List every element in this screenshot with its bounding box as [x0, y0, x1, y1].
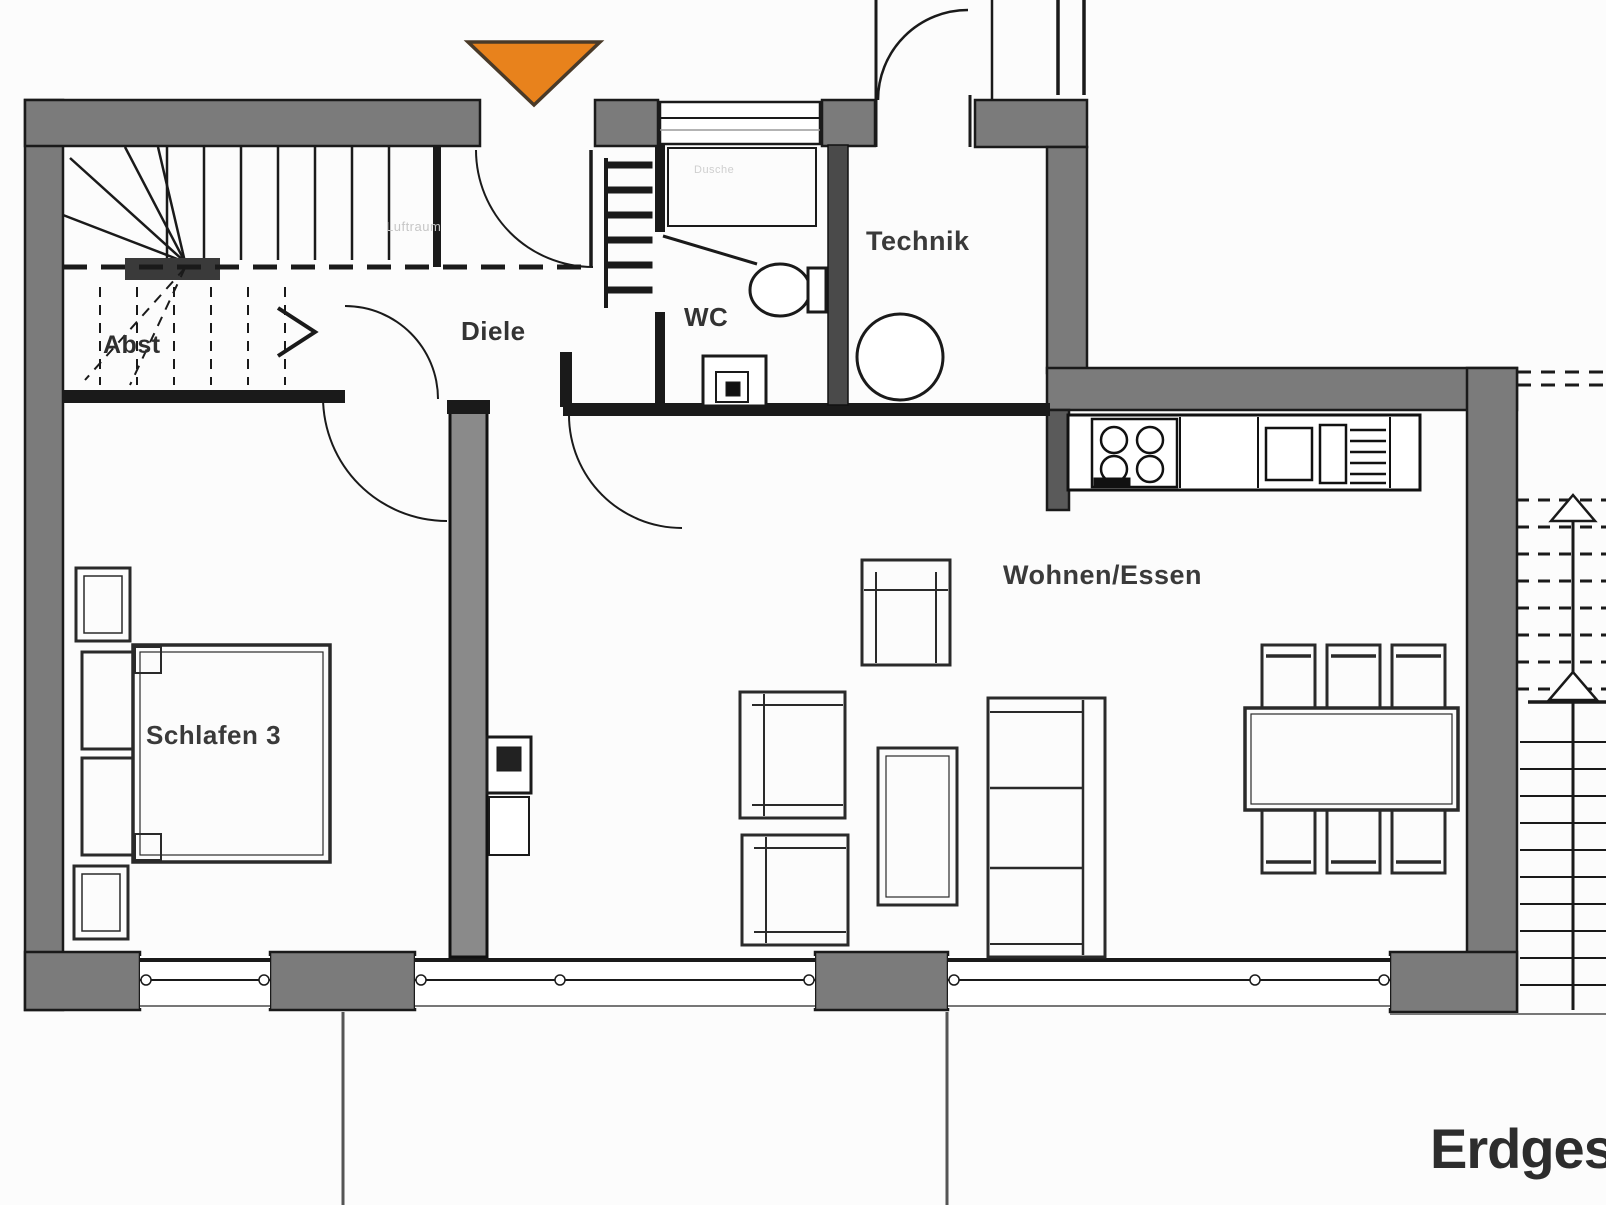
stair-arrowhead-icon — [1549, 672, 1597, 700]
bedroom-furniture — [74, 568, 330, 939]
wall-pier-bottom-4 — [1390, 952, 1517, 1012]
exterior-walls — [25, 100, 1517, 1012]
window-bottom-2 — [415, 956, 815, 1008]
bed-corner — [135, 647, 161, 673]
wall-right — [1467, 368, 1517, 1012]
bed-corner — [135, 834, 161, 860]
wc-fixtures — [668, 148, 826, 406]
wall-schlafen-wohnen-cap — [447, 400, 490, 414]
stair-direction-arrow-icon — [278, 308, 315, 356]
winder-line — [125, 147, 185, 262]
room-label-diele: Diele — [461, 316, 526, 347]
armchair-icon — [740, 692, 845, 818]
window-bottom-3 — [948, 956, 1390, 1008]
window-bottom-1 — [140, 956, 270, 1008]
wall-stairroom-bottom — [63, 390, 345, 403]
wall-unit-display — [497, 747, 521, 771]
faint-label-luftraum: Luftraum — [386, 219, 441, 234]
kitchen-counter — [1068, 415, 1420, 490]
room-label-wc: WC — [684, 302, 728, 333]
wall-technik-right — [1047, 147, 1087, 373]
radiator-icon — [606, 158, 652, 308]
wc-shower-area — [668, 148, 816, 226]
winder-line — [158, 147, 185, 262]
boiler-icon — [857, 314, 943, 400]
room-label-technik: Technik — [866, 226, 970, 257]
window-top — [660, 102, 820, 144]
wall-top-a — [25, 100, 480, 146]
burner — [1137, 456, 1163, 482]
wall-wohnen-top — [1047, 368, 1517, 410]
floorplan-canvas: Abst Diele WC Technik Wohnen/Essen Schla… — [0, 0, 1606, 1205]
floorplan-drawing — [0, 0, 1606, 1205]
shaft-wc-technik — [828, 145, 848, 405]
pillow-icon — [82, 758, 133, 855]
wall-top-d — [975, 100, 1087, 147]
wc-door-leaf — [663, 236, 757, 264]
bed-icon — [133, 645, 330, 862]
toilet-tank — [808, 268, 826, 312]
room-label-schlafen-3: Schlafen 3 — [146, 720, 281, 751]
entrance-marker-icon — [468, 42, 600, 105]
winder-dashed — [130, 268, 185, 385]
dining-table-icon — [1245, 708, 1458, 810]
door-arc-entrance-top — [878, 10, 968, 100]
pillow-icon — [82, 652, 133, 749]
faint-label-dusche: Dusche — [694, 164, 734, 176]
dining-set — [1245, 645, 1458, 873]
wall-unit-lower — [489, 797, 529, 855]
room-label-wohnen-essen: Wohnen/Essen — [1003, 560, 1202, 591]
wall-pier-bottom-2 — [270, 952, 415, 1010]
wall-left — [25, 100, 63, 1010]
burner — [1101, 427, 1127, 453]
wall-top-b — [595, 100, 658, 146]
wall-schlafen-wohnen — [450, 403, 487, 957]
stove-panel — [1094, 478, 1130, 487]
dishwasher-icon — [1320, 425, 1346, 483]
living-furniture — [740, 560, 1105, 957]
wall-pier-bottom-1 — [25, 952, 140, 1010]
wall-wc-left-lower — [655, 312, 665, 405]
kitchen-end-pier — [1047, 410, 1069, 510]
wall-unit — [487, 737, 531, 855]
sofa-icon — [988, 698, 1105, 957]
burner — [1137, 427, 1163, 453]
section-lines — [343, 1012, 947, 1205]
coffee-table-icon — [878, 748, 957, 905]
wall-wc-left-upper — [655, 145, 665, 232]
sink-drain — [726, 382, 740, 396]
wall-pier-bottom-3 — [815, 952, 948, 1010]
wall-stair-diele — [433, 147, 441, 267]
plan-title: Erdgeschoss — [1430, 1116, 1606, 1181]
toilet-icon — [750, 264, 810, 316]
kitchen-sink-icon — [1266, 428, 1312, 480]
armchair-icon — [742, 835, 848, 945]
wall-technik-bottom — [830, 403, 1050, 416]
room-label-abst: Abst — [103, 331, 161, 360]
wall-stub-diele — [560, 352, 572, 407]
wall-top-c — [822, 100, 875, 146]
